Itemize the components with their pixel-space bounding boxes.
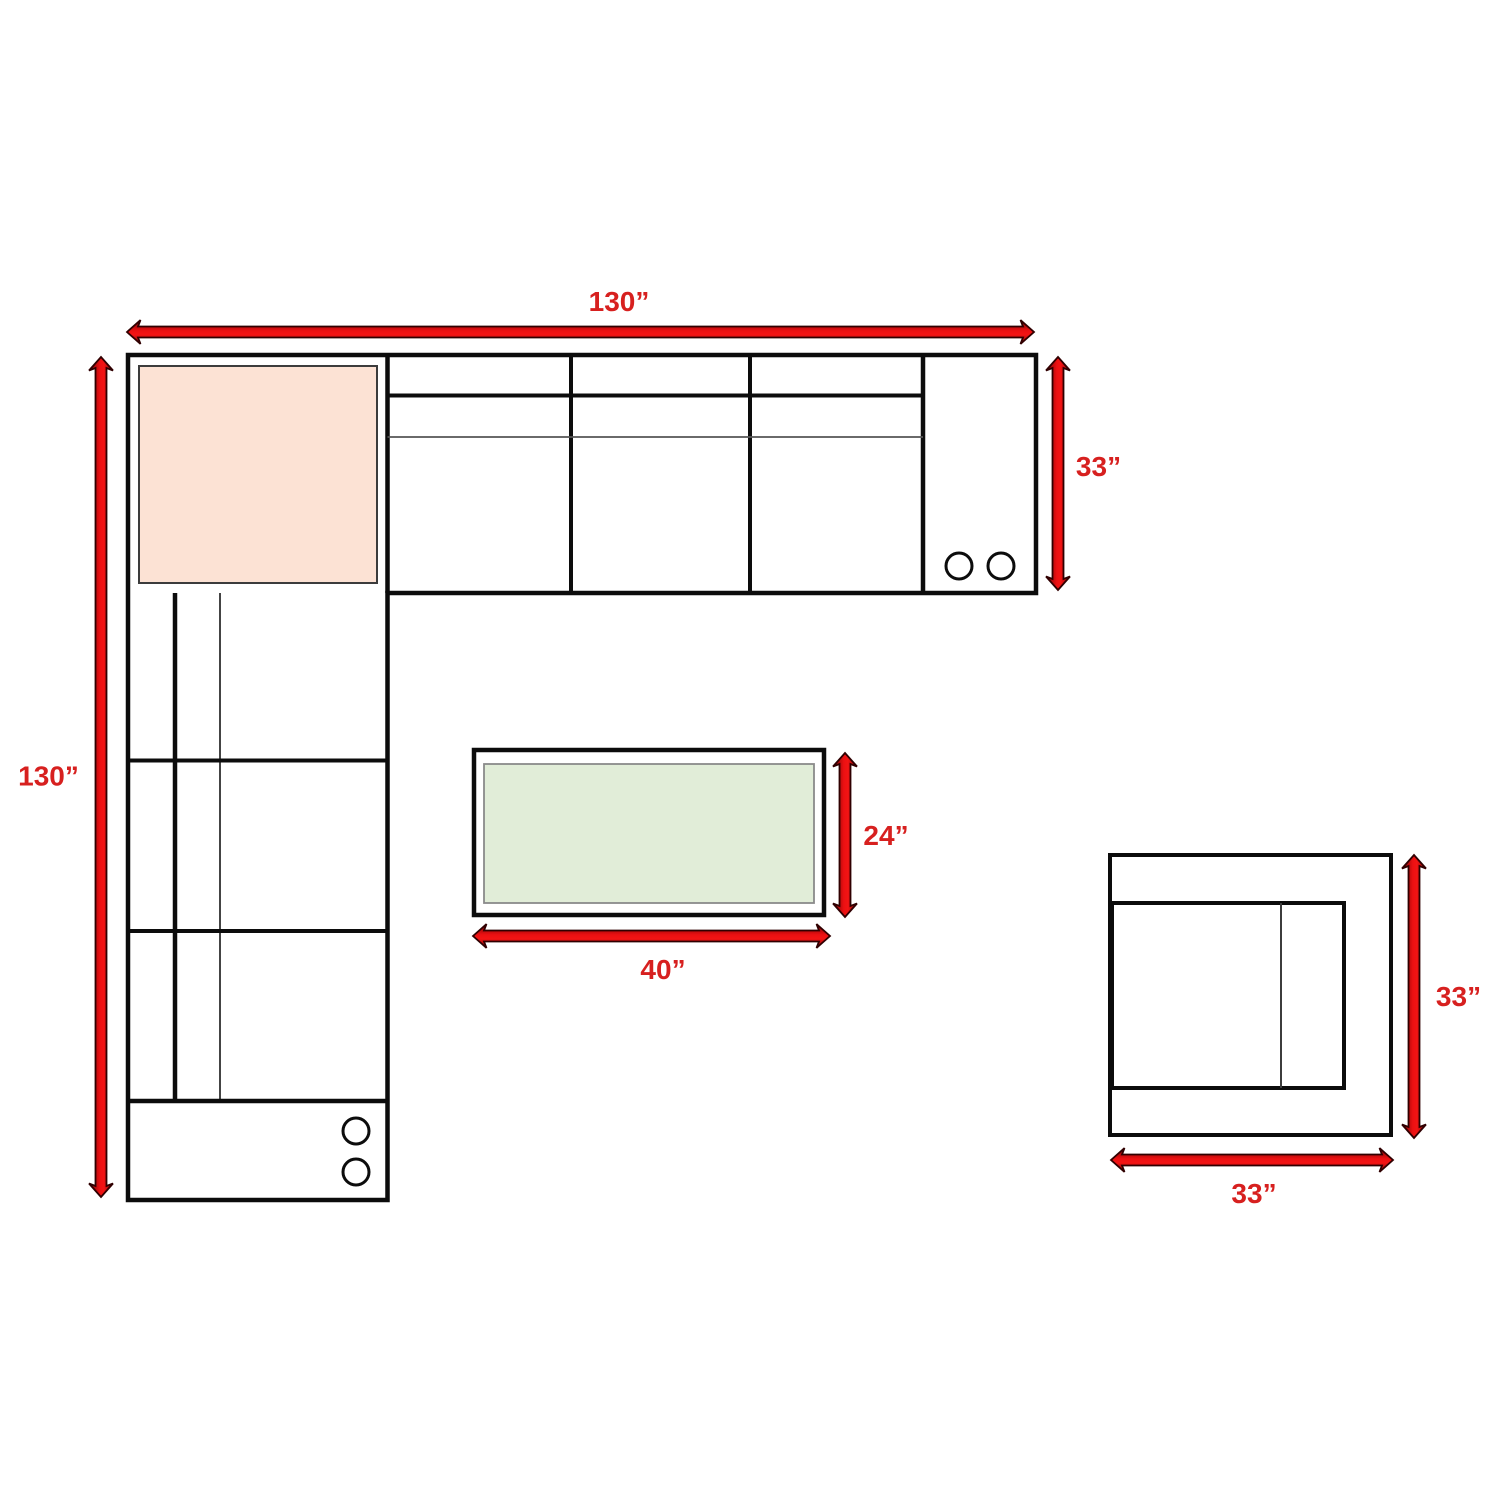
- svg-text:40”: 40”: [640, 954, 685, 985]
- svg-text:130”: 130”: [589, 286, 650, 317]
- svg-text:24”: 24”: [863, 820, 908, 851]
- svg-text:33”: 33”: [1436, 981, 1481, 1012]
- svg-text:130”: 130”: [18, 761, 79, 792]
- svg-text:33”: 33”: [1076, 451, 1121, 482]
- svg-text:33”: 33”: [1231, 1178, 1276, 1209]
